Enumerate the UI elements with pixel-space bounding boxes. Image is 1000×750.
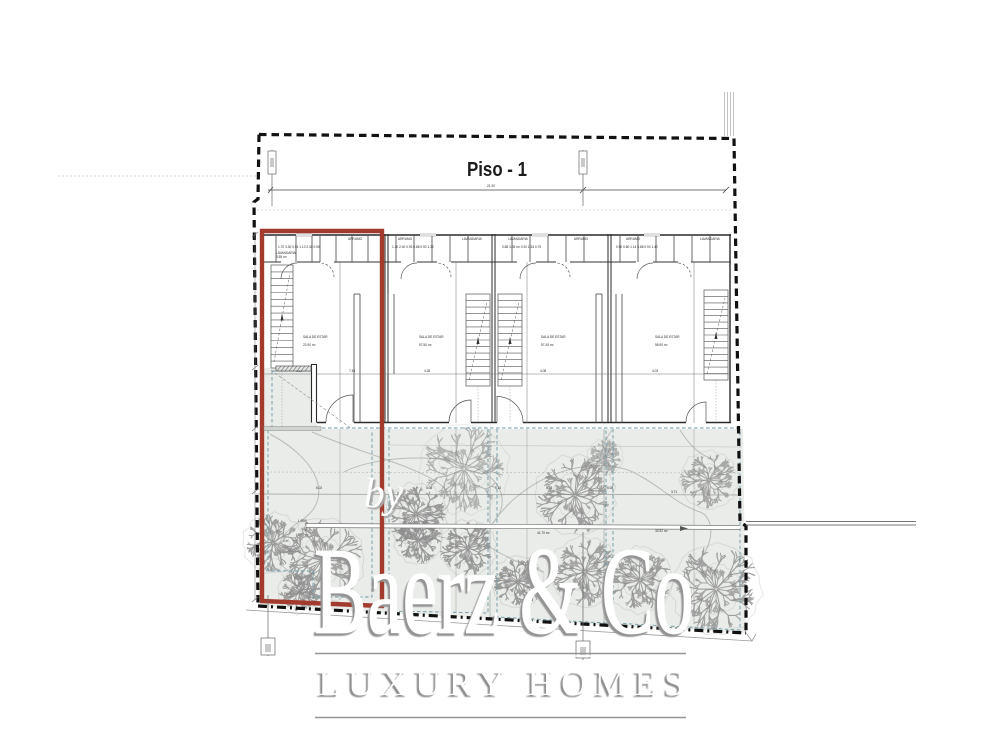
svg-text:SALA DE ESTAR: SALA DE ESTAR [419,335,444,339]
svg-text:SALA DE ESTAR: SALA DE ESTAR [303,335,328,339]
svg-text:1.10 2.40 0.93 0.88 0.90 1.3: 1.10 2.40 0.93 0.88 0.90 1.35 [392,245,434,249]
svg-text:by: by [364,471,404,517]
svg-text:6.02: 6.02 [316,486,322,490]
svg-text:LAVANDARIA: LAVANDARIA [462,237,483,241]
svg-text:57.45 m²: 57.45 m² [541,343,554,347]
svg-text:1.70 3.30 0.94 1.10 2.40 0.9: 1.70 3.30 0.94 1.10 2.40 0.90 [278,245,320,249]
svg-text:LAVANDARIA: LAVANDARIA [508,237,529,241]
svg-text:3.71: 3.71 [671,490,677,494]
svg-text:22.90 m²: 22.90 m² [303,343,316,347]
svg-text:SALA DE ESTAR: SALA DE ESTAR [541,335,566,339]
svg-text:LAVANDARIA: LAVANDARIA [700,237,721,241]
svg-text:Piso - 1: Piso - 1 [467,159,527,181]
svg-text:ARRUMO: ARRUMO [626,237,641,241]
svg-text:21.30: 21.30 [487,184,495,188]
svg-text:4.08: 4.08 [540,369,546,373]
svg-text:ARRUMO: ARRUMO [398,237,413,241]
svg-text:7.40: 7.40 [349,369,355,373]
svg-text:ARRUMO: ARRUMO [348,237,363,241]
svg-text:ARRUMO: ARRUMO [574,237,589,241]
svg-text:0.90 0.80 1.14 0.88 0.93 1.: 0.90 0.80 1.14 0.88 0.93 1.40 [616,245,658,249]
svg-text:SALA DE ESTAR: SALA DE ESTAR [655,335,680,339]
svg-text:4.03: 4.03 [652,369,658,373]
svg-text:3.55 m²: 3.55 m² [276,255,287,259]
svg-text:0.88 3.05 m² 0.92 1.34 0.7: 0.88 3.05 m² 0.92 1.34 0.70 [502,245,541,249]
svg-text:Baerz & Co: Baerz & Co [314,523,694,661]
svg-text:58.90 m²: 58.90 m² [655,343,668,347]
svg-text:5.08: 5.08 [607,486,613,490]
svg-text:57.50 m²: 57.50 m² [419,343,432,347]
svg-text:4.28: 4.28 [424,369,430,373]
